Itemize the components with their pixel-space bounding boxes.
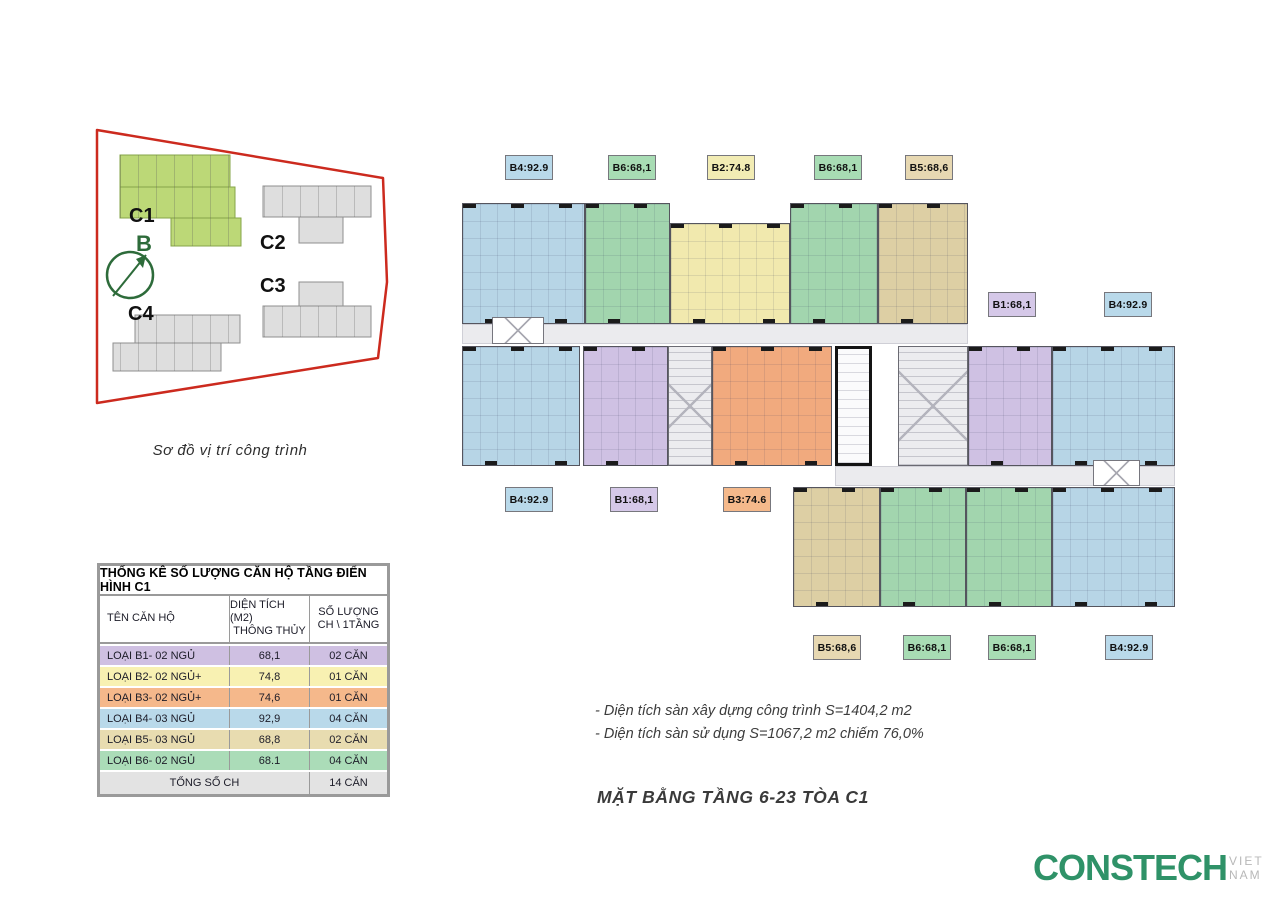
compass-icon — [107, 252, 153, 298]
table-total-row: TỔNG SỐ CH 14 CĂN — [100, 770, 387, 794]
page-title: MẶT BẰNG TẦNG 6-23 TÒA C1 — [597, 787, 869, 808]
unit-b4-bottom — [1052, 487, 1175, 607]
elevator-core — [835, 346, 872, 466]
note-built-area: - Diện tích sàn xây dựng công trình S=14… — [595, 703, 912, 719]
unit-b5-top — [878, 203, 968, 324]
elevator-shaft-lower — [1093, 460, 1140, 486]
site-diagram-caption: Sơ đồ vị trí công trình — [115, 442, 345, 459]
table-row: LOẠI B3- 02 NGỦ+ 74,6 01 CĂN — [100, 686, 387, 707]
unit-b4-mid-right — [1052, 346, 1175, 466]
unit-b2-top — [670, 223, 790, 324]
unit-label: B4:92.9 — [505, 487, 553, 512]
table-row: LOẠI B2- 02 NGỦ+ 74,8 01 CĂN — [100, 665, 387, 686]
unit-label: B4:92.9 — [1105, 635, 1153, 660]
floor-plan-sheet: C1 C2 C3 C4 B Sơ đồ vị trí công trình — [0, 0, 1280, 906]
unit-b6-top-right — [790, 203, 878, 324]
table-header-row: TÊN CĂN HỘ DIỆN TÍCH (M2) THÔNG THỦY SỐ … — [100, 596, 387, 644]
table-row: LOẠI B6- 02 NGỦ 68.1 04 CĂN — [100, 749, 387, 770]
unit-label: B4:92.9 — [1104, 292, 1152, 317]
floor-plan: B4:92.9 B6:68,1 B2:74.8 B6:68,1 B5:68,6 … — [455, 145, 1185, 675]
building-label-c2: C2 — [260, 232, 286, 254]
logo-region-text: VIET NAM — [1229, 854, 1280, 882]
unit-b6-top-left — [585, 203, 670, 324]
unit-b4-mid-left — [462, 346, 580, 466]
unit-b6-bottom-left — [880, 487, 966, 607]
unit-label: B6:68,1 — [814, 155, 862, 180]
unit-label: B5:68,6 — [905, 155, 953, 180]
unit-b4-top — [462, 203, 585, 324]
building-label-c3: C3 — [260, 275, 286, 297]
header-count: SỐ LƯỢNG CH \ 1TẦNG — [309, 596, 387, 642]
header-area: DIỆN TÍCH (M2) THÔNG THỦY — [229, 596, 309, 642]
constech-logo: CONSTECH VIET NAM — [1033, 850, 1280, 886]
unit-label: B5:68,6 — [813, 635, 861, 660]
note-usable-area: - Diện tích sàn sử dụng S=1067,2 m2 chiế… — [595, 726, 924, 742]
unit-label: B6:68,1 — [608, 155, 656, 180]
logo-text: CONSTECH — [1033, 850, 1227, 886]
building-label-c4: C4 — [128, 303, 154, 325]
table-row: LOẠI B5- 03 NGỦ 68,8 02 CĂN — [100, 728, 387, 749]
header-name: TÊN CĂN HỘ — [100, 596, 229, 642]
table-title: THỐNG KÊ SỐ LƯỢNG CĂN HỘ TẦNG ĐIỂN HÌNH … — [100, 566, 387, 596]
unit-label: B6:68,1 — [988, 635, 1036, 660]
unit-label: B1:68,1 — [988, 292, 1036, 317]
elevator-shaft-upper — [492, 317, 544, 344]
stair-core-right — [898, 346, 968, 466]
unit-b1-mid-right — [968, 346, 1052, 466]
unit-b1-mid-left — [583, 346, 668, 466]
unit-b3-mid — [712, 346, 832, 466]
stair-core-left — [668, 346, 712, 466]
unit-b5-bottom — [793, 487, 880, 607]
unit-label: B6:68,1 — [903, 635, 951, 660]
table-row: LOẠI B4- 03 NGỦ 92,9 04 CĂN — [100, 707, 387, 728]
unit-b6-bottom-right — [966, 487, 1052, 607]
unit-label: B4:92.9 — [505, 155, 553, 180]
unit-label: B1:68,1 — [610, 487, 658, 512]
table-row: LOẠI B1- 02 NGỦ 68,1 02 CĂN — [100, 644, 387, 665]
unit-label: B3:74.6 — [723, 487, 771, 512]
unit-label: B2:74.8 — [707, 155, 755, 180]
building-label-c1: C1 — [129, 205, 155, 227]
apartment-statistics-table: THỐNG KÊ SỐ LƯỢNG CĂN HỘ TẦNG ĐIỂN HÌNH … — [97, 563, 390, 797]
site-location-diagram: C1 C2 C3 C4 B — [85, 112, 395, 432]
